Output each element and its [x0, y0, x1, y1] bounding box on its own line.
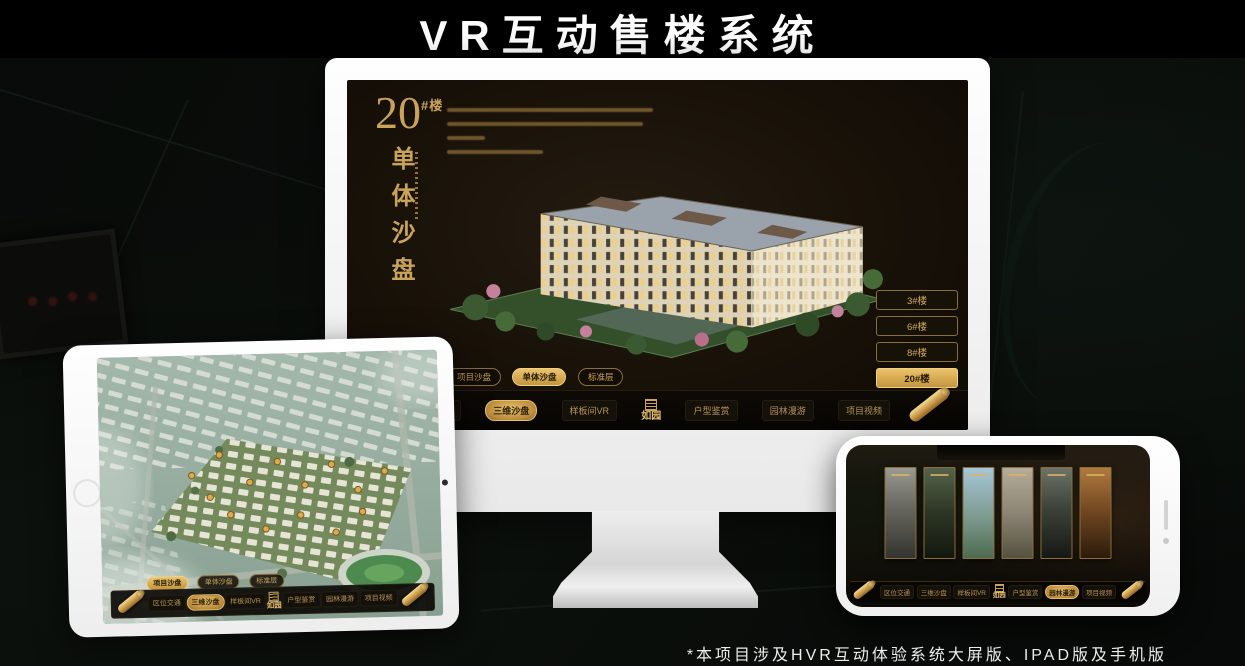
pergola-beam-silhouette: [937, 445, 1065, 460]
floor-button-3[interactable]: 3#楼: [876, 290, 958, 310]
logo-text: 如园: [267, 602, 282, 610]
building-number: 20: [375, 87, 421, 138]
floor-button-20[interactable]: 20#楼: [876, 368, 958, 388]
phone-screen: 区位交通 三维沙盘 样板间VR 如园 户型鉴赏 园林漫游 项目视频: [846, 445, 1150, 607]
section-vertical-title: 单体沙盘: [383, 146, 418, 294]
building-label: 20#楼: [375, 90, 443, 136]
logo-text: 如园: [993, 593, 1006, 600]
ruyuan-logo: 如园: [641, 399, 661, 422]
page: VR互动售楼系统 20#楼 单体沙盘: [0, 0, 1245, 666]
subtab-standard-floor[interactable]: 标准层: [578, 368, 624, 386]
scroll-handle-icon[interactable]: [1120, 579, 1144, 600]
scene-panel-card[interactable]: [924, 467, 956, 559]
building-number-suffix: #楼: [421, 98, 443, 113]
tablet-frame: 项目沙盘 单体沙盘 标准层 区位交通 三维沙盘 样板间VR 如园 户型鉴赏: [62, 336, 459, 637]
scene-panel-card[interactable]: [1002, 467, 1034, 559]
menu-item-location-traffic[interactable]: 区位交通: [880, 585, 914, 599]
scroll-handle-icon[interactable]: [116, 589, 145, 615]
background-plaque: [0, 229, 129, 360]
building-description-text: [447, 108, 653, 164]
menu-item-3d-sandtable[interactable]: 三维沙盘: [186, 594, 224, 611]
menu-item-model-room-vr[interactable]: 样板间VR: [225, 593, 266, 610]
scene-panel-card[interactable]: [1041, 467, 1073, 559]
floor-button-6[interactable]: 6#楼: [876, 316, 958, 336]
menu-item-floorplan-gallery[interactable]: 户型鉴赏: [1008, 585, 1042, 599]
menu-item-project-video[interactable]: 项目视频: [1082, 585, 1116, 599]
menu-item-garden-roam[interactable]: 园林漫游: [1045, 585, 1079, 599]
footnote-text: *本项目涉及HVR互动体验系统大屏版、IPAD版及手机版: [687, 641, 1167, 665]
menu-item-floorplan-gallery[interactable]: 户型鉴赏: [282, 592, 320, 609]
building-render-image: [435, 158, 893, 360]
scroll-handle-icon[interactable]: [852, 579, 876, 600]
menu-item-3d-sandtable[interactable]: 三维沙盘: [485, 400, 537, 421]
page-title: VR互动售楼系统: [0, 2, 1245, 63]
phone-menu-bar: 区位交通 三维沙盘 样板间VR 如园 户型鉴赏 园林漫游 项目视频: [850, 581, 1146, 602]
menu-item-project-video[interactable]: 项目视频: [838, 400, 890, 421]
menu-item-3d-sandtable[interactable]: 三维沙盘: [917, 585, 951, 599]
phone-camera-icon: [1163, 538, 1169, 544]
scene-panel-card[interactable]: [1080, 467, 1112, 559]
tablet-camera-icon: [442, 479, 448, 485]
menu-item-model-room-vr[interactable]: 样板间VR: [562, 400, 618, 421]
menu-item-garden-roam[interactable]: 园林漫游: [321, 591, 359, 608]
logo-seal-icon: [645, 399, 657, 411]
scroll-handle-icon[interactable]: [907, 386, 951, 424]
scene-panel-card[interactable]: [963, 467, 995, 559]
ruyuan-logo: 如园: [266, 592, 281, 610]
subtab-project-sandtable[interactable]: 项目沙盘: [447, 368, 501, 386]
logo-text: 如园: [641, 412, 661, 422]
phone-frame: 区位交通 三维沙盘 样板间VR 如园 户型鉴赏 园林漫游 项目视频: [836, 436, 1180, 616]
menu-item-floorplan-gallery[interactable]: 户型鉴赏: [685, 400, 737, 421]
menu-item-model-room-vr[interactable]: 样板间VR: [953, 585, 990, 599]
scroll-handle-icon[interactable]: [400, 582, 429, 608]
floor-button-group: 3#楼 6#楼 8#楼 20#楼: [876, 290, 958, 394]
menu-item-location-traffic[interactable]: 区位交通: [148, 595, 186, 612]
ruyuan-logo: 如园: [993, 584, 1006, 600]
tablet-home-button[interactable]: [73, 479, 102, 508]
floor-button-8[interactable]: 8#楼: [876, 342, 958, 362]
subtab-single-sandtable[interactable]: 单体沙盘: [512, 368, 566, 386]
vertical-english-caption: [415, 152, 418, 222]
scene-panel-strip: [885, 467, 1112, 559]
scene-panel-card[interactable]: [885, 467, 917, 559]
tablet-screen: 项目沙盘 单体沙盘 标准层 区位交通 三维沙盘 样板间VR 如园 户型鉴赏: [97, 350, 443, 624]
monitor-subtabs: 项目沙盘 单体沙盘 标准层: [447, 367, 630, 386]
menu-item-project-video[interactable]: 项目视频: [360, 590, 398, 607]
menu-item-garden-roam[interactable]: 园林漫游: [762, 400, 814, 421]
phone-speaker-icon: [1164, 500, 1168, 530]
